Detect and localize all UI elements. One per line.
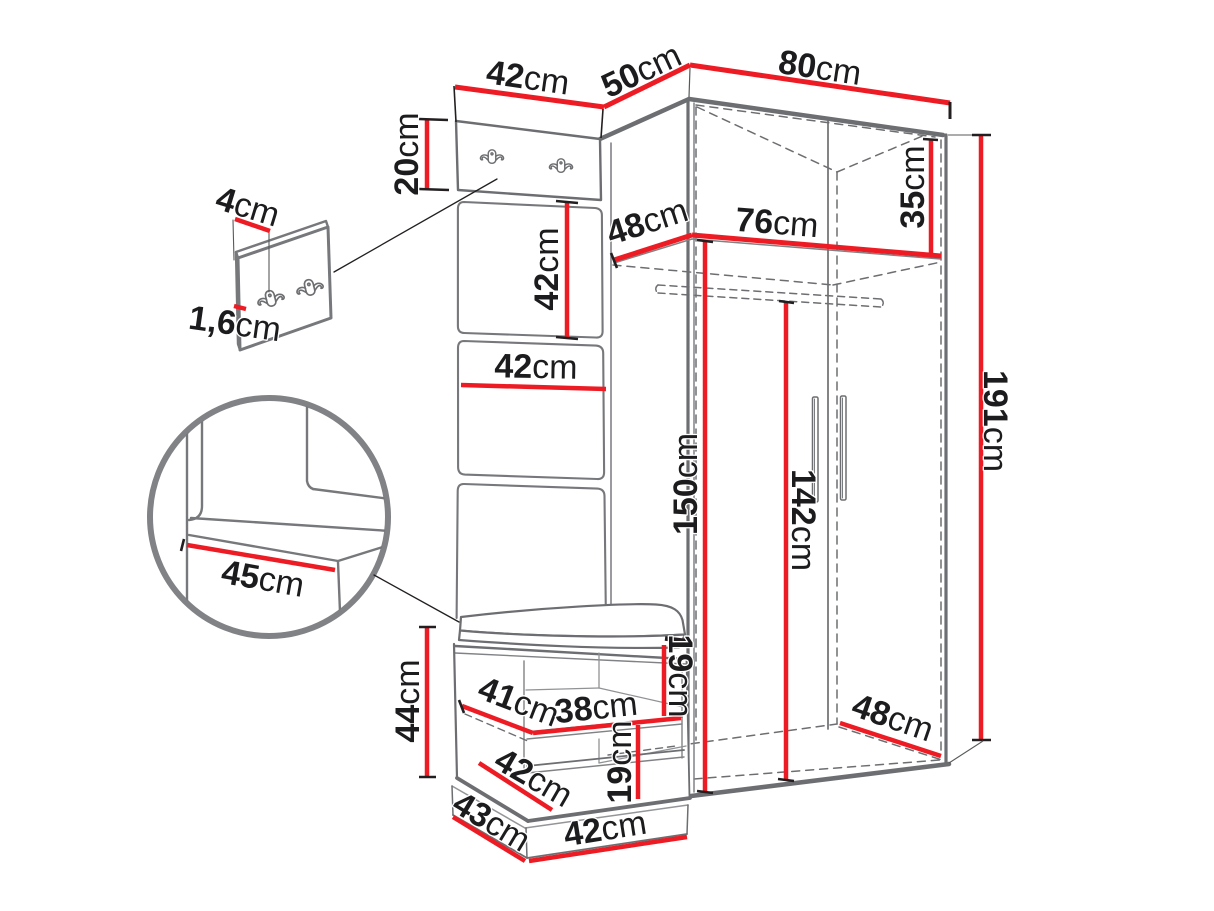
svg-text:35cm: 35cm — [894, 145, 932, 228]
svg-text:80cm: 80cm — [776, 43, 864, 93]
svg-text:19cm: 19cm — [661, 634, 699, 717]
svg-text:191cm: 191cm — [976, 370, 1014, 472]
svg-text:44cm: 44cm — [389, 659, 427, 742]
svg-text:19cm: 19cm — [601, 720, 639, 803]
svg-text:150cm: 150cm — [667, 433, 705, 535]
svg-text:50cm: 50cm — [596, 36, 687, 106]
svg-text:20cm: 20cm — [388, 112, 426, 195]
svg-text:42cm: 42cm — [494, 347, 578, 386]
svg-text:42cm: 42cm — [528, 227, 566, 310]
svg-text:142cm: 142cm — [784, 469, 822, 571]
svg-text:4cm: 4cm — [211, 179, 284, 234]
svg-text:76cm: 76cm — [734, 201, 820, 245]
svg-text:42cm: 42cm — [484, 53, 572, 102]
